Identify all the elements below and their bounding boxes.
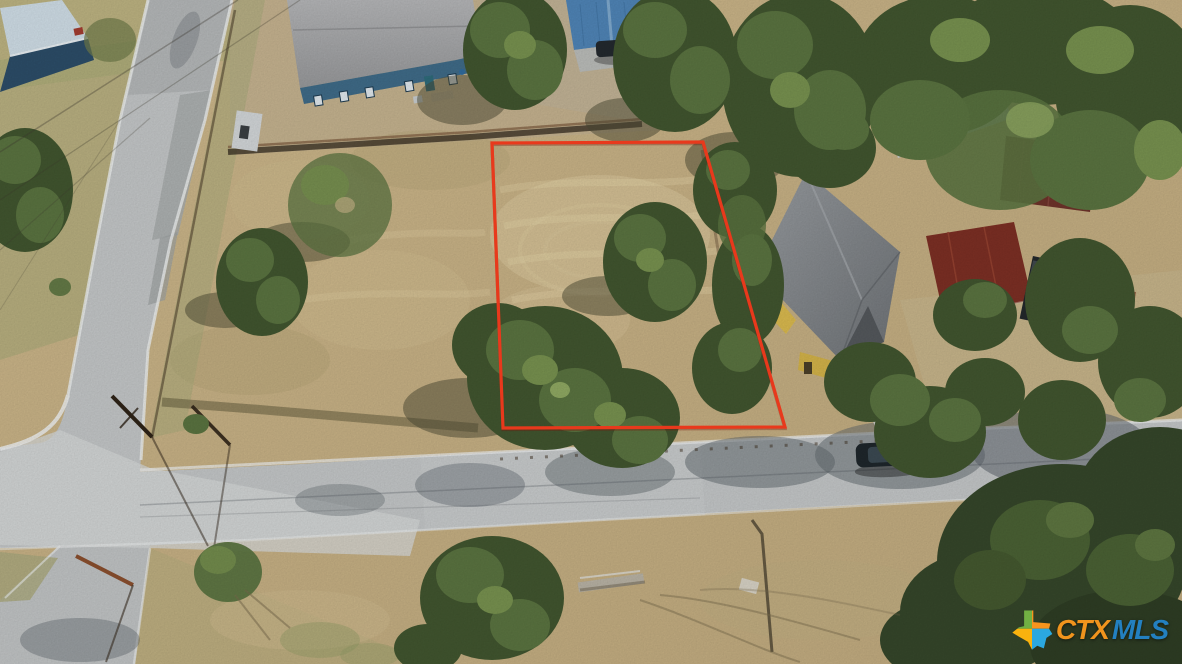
scene-svg <box>0 0 1182 664</box>
watermark-text-ctx: CTX <box>1056 616 1109 644</box>
photo-grain <box>0 0 1182 664</box>
texas-state-icon <box>1011 609 1053 651</box>
ctxmls-watermark: CTX MLS <box>1011 609 1168 651</box>
watermark-text-mls: MLS <box>1112 616 1168 644</box>
aerial-photo: CTX MLS <box>0 0 1182 664</box>
